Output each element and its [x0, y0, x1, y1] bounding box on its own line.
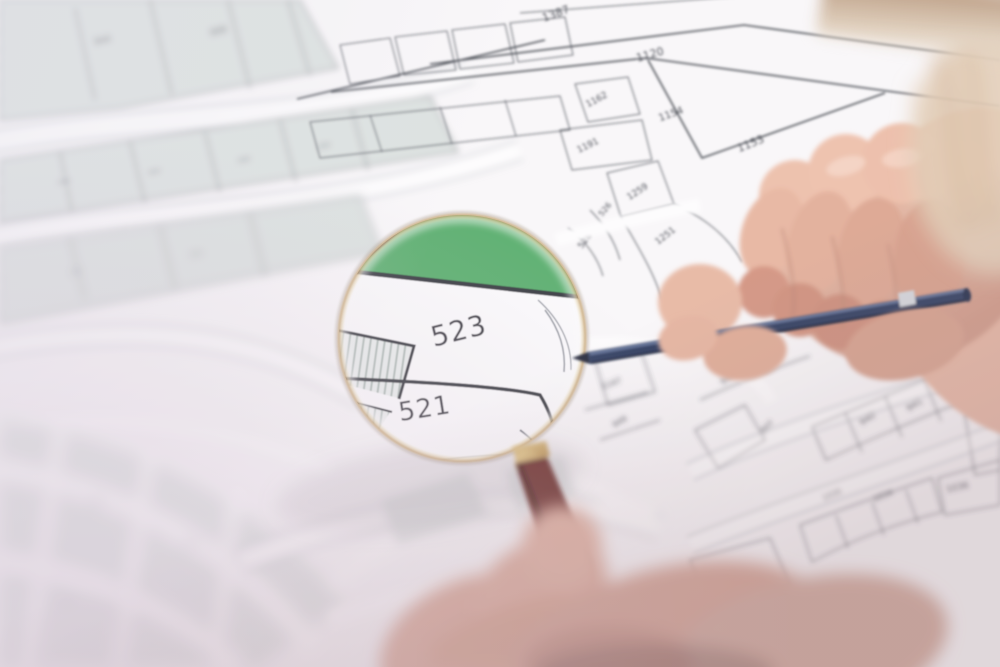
photo-scene: 944999 — [0, 0, 1000, 667]
pen-band — [898, 290, 916, 307]
cadastral-map-photo: 944999 — [0, 0, 1000, 667]
